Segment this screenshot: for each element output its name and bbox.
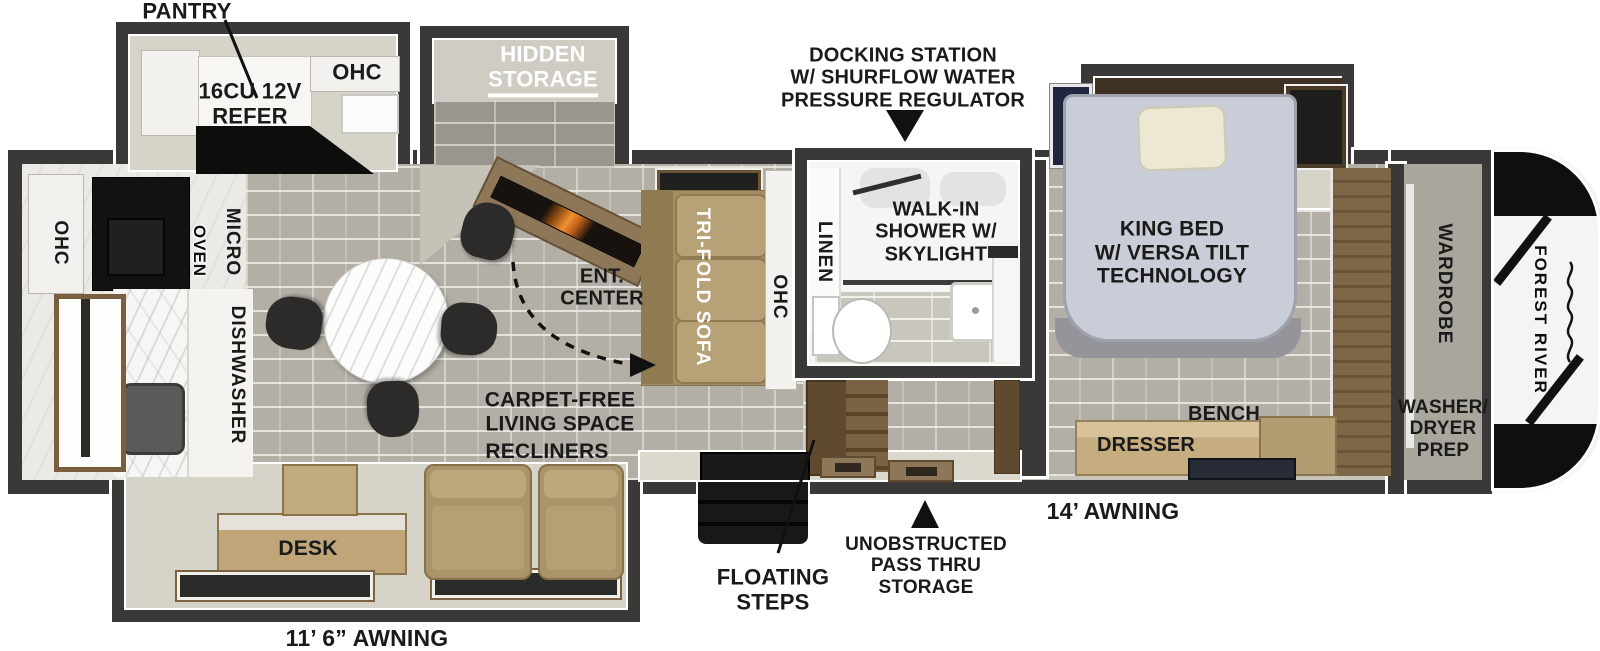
washer-dryer-label: WASHER/ DRYER PREP [1398, 397, 1488, 461]
sofa-cushion [675, 320, 767, 384]
brand-label: FOREST RIVER [1530, 245, 1550, 395]
entry-cabinet [994, 380, 1020, 474]
carpet-free-label: CARPET-FREE LIVING SPACE [485, 388, 635, 435]
floating-steps-label: FLOATING STEPS [717, 565, 829, 614]
ohc-sofa-label: OHC [768, 274, 790, 319]
hidden-storage-floor [434, 100, 615, 168]
entry-step-well [700, 452, 810, 484]
slideout-window [177, 572, 373, 600]
shower-label: WALK-IN SHOWER W/ SKYLIGHT [875, 198, 997, 265]
tri-fold-sofa-label: TRI-FOLD SOFA [691, 208, 713, 367]
toilet [832, 298, 892, 364]
desk-chair [282, 464, 358, 516]
bedroom-closet [1330, 168, 1391, 476]
ent-center-label: ENT. CENTER [560, 266, 643, 311]
kitchen-sink [121, 383, 185, 455]
refrigerator-label: 16CU 12V REFER [198, 79, 301, 128]
docking-arrow-down-icon [886, 110, 924, 142]
ohc-top-label: OHC [332, 61, 382, 86]
recliners-label: RECLINERS [485, 440, 608, 464]
sofa-cushion [675, 194, 767, 258]
storage-hatch [820, 456, 876, 478]
microwave-label: MICRO [221, 208, 243, 276]
pantry-label: PANTRY [142, 0, 231, 24]
pass-thru-arrow-up-icon [911, 500, 939, 528]
kitchen-window [54, 294, 126, 472]
linen-label: LINEN [813, 221, 835, 283]
recliner [424, 464, 532, 580]
floor-mat [1188, 458, 1296, 480]
wardrobe-label: WARDROBE [1433, 224, 1455, 345]
rv-floorplan: PANTRY 16CU 12V REFER OHC HIDDEN STORAGE… [0, 0, 1600, 651]
sofa-backrest [641, 190, 673, 384]
bench-label: BENCH [1188, 403, 1260, 425]
dresser-label: DRESSER [1097, 434, 1195, 456]
sofa-cushion [675, 258, 767, 322]
desk-label: DESK [278, 537, 337, 561]
dishwasher-label: DISHWASHER [226, 306, 248, 445]
storage-hatch [888, 460, 954, 482]
range-oven [92, 177, 190, 291]
awning-left-label: 11’ 6” AWNING [286, 626, 449, 651]
bed-pillow [1137, 104, 1227, 171]
dining-chair [366, 380, 420, 438]
docking-station-label: DOCKING STATION W/ SHURFLOW WATER PRESSU… [781, 44, 1025, 111]
king-bed-label: KING BED W/ VERSA TILT TECHNOLOGY [1095, 218, 1249, 289]
pass-thru-label: UNOBSTRUCTED PASS THRU STORAGE [845, 534, 1007, 598]
floating-steps [698, 482, 808, 544]
bathroom-vanity [992, 252, 1020, 362]
dining-table [323, 258, 449, 384]
prep-sink [341, 94, 399, 134]
oven-label: OVEN [189, 225, 209, 277]
recliner [538, 464, 624, 580]
pantry-cabinet [141, 50, 200, 136]
awning-right-label: 14’ AWNING [1047, 499, 1180, 525]
hidden-storage-label: HIDDEN STORAGE [488, 42, 598, 97]
ohc-left-label: OHC [49, 220, 71, 265]
